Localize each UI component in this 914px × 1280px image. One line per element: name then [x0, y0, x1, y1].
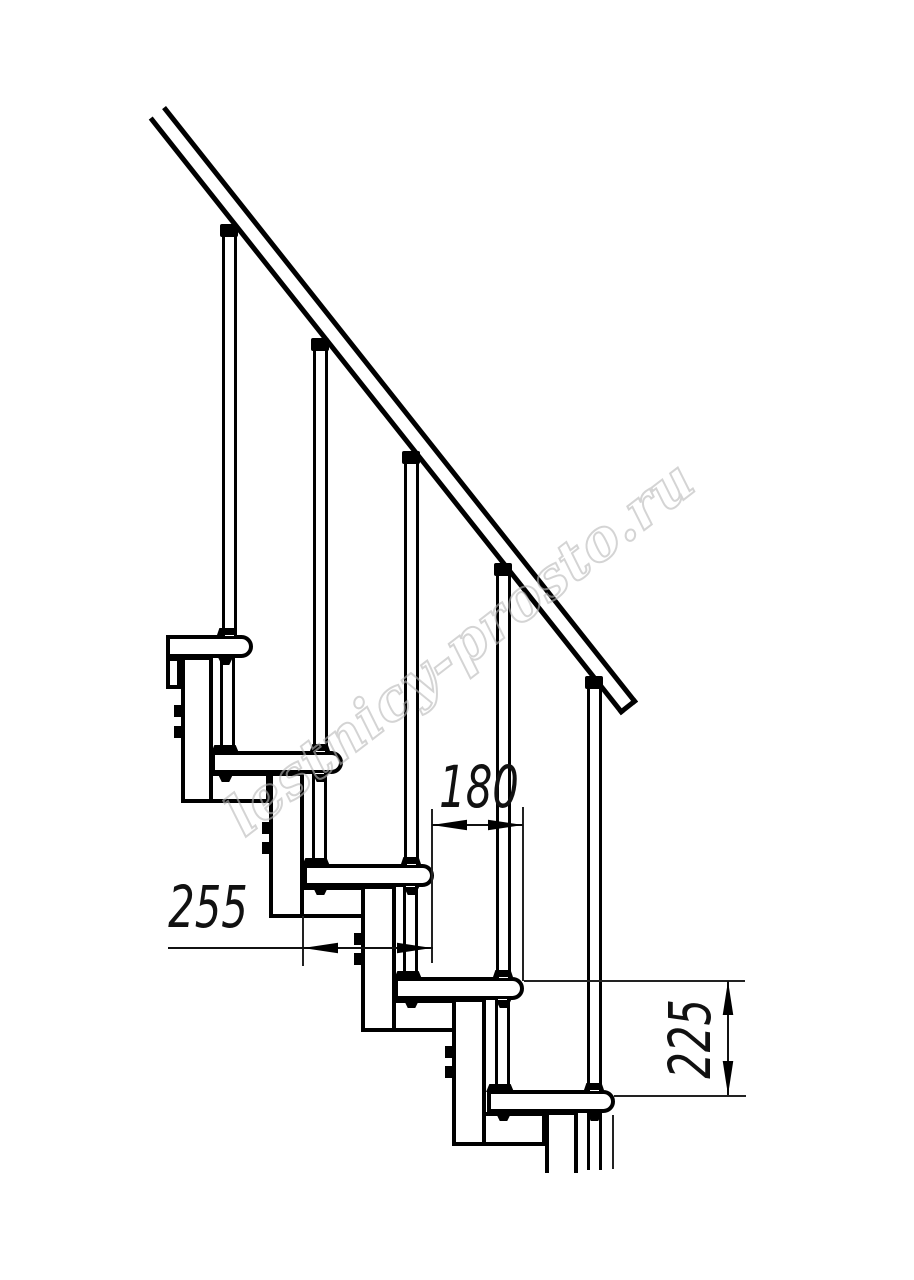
support-column-3 — [361, 885, 396, 1032]
connector-tab — [262, 842, 270, 854]
extension-line — [522, 807, 524, 981]
support-column-4 — [452, 998, 486, 1146]
extension-line — [612, 1115, 614, 1169]
arrowhead-left — [303, 942, 338, 954]
tread-5 — [487, 1090, 615, 1113]
connector-tab — [354, 953, 362, 965]
extension-line — [302, 916, 304, 966]
extension-line — [524, 980, 745, 982]
baluster-base-clamp — [217, 628, 237, 635]
tread-4 — [394, 977, 524, 1000]
extension-line — [431, 809, 433, 963]
column-foot-cut — [166, 657, 181, 689]
baluster-rail-cap — [585, 676, 603, 689]
technical-drawing-staircase-side-view: 180 255 225 lestnicy-prosto.ru — [0, 0, 914, 1280]
baluster-base-clamp — [401, 857, 421, 864]
dimension-label-180: 180 — [436, 756, 522, 820]
step-bolt-1 — [220, 657, 235, 753]
bolt-foot — [486, 1084, 514, 1092]
step-bolt-5 — [587, 1113, 602, 1170]
step-bolt-3 — [403, 886, 418, 979]
dimension-label-225: 225 — [659, 996, 723, 1082]
baluster-rail-cap — [402, 451, 420, 464]
baluster-rail-cap — [220, 224, 238, 237]
baluster-rail-cap — [311, 338, 329, 351]
baluster-2 — [313, 348, 328, 752]
dimension-line-255 — [168, 947, 433, 949]
bolt-foot — [211, 745, 239, 753]
step-bolt-4 — [495, 999, 510, 1092]
support-column-1 — [181, 656, 213, 803]
bolt-foot — [394, 971, 422, 979]
connector-tab — [174, 726, 182, 738]
baluster-1 — [222, 234, 237, 636]
baluster-base-clamp — [493, 970, 513, 977]
connector-tab — [354, 933, 362, 945]
connector-tab — [445, 1046, 453, 1058]
baluster-base-clamp — [584, 1083, 604, 1090]
connector-tab — [445, 1066, 453, 1078]
tread-3 — [303, 864, 434, 887]
dimension-label-255: 255 — [165, 876, 251, 940]
connector-tab — [174, 705, 182, 717]
tread-1 — [166, 635, 253, 658]
bolt-foot — [302, 858, 330, 866]
baluster-5 — [587, 686, 602, 1091]
extension-line — [614, 1095, 746, 1097]
support-column-5 — [545, 1111, 578, 1173]
